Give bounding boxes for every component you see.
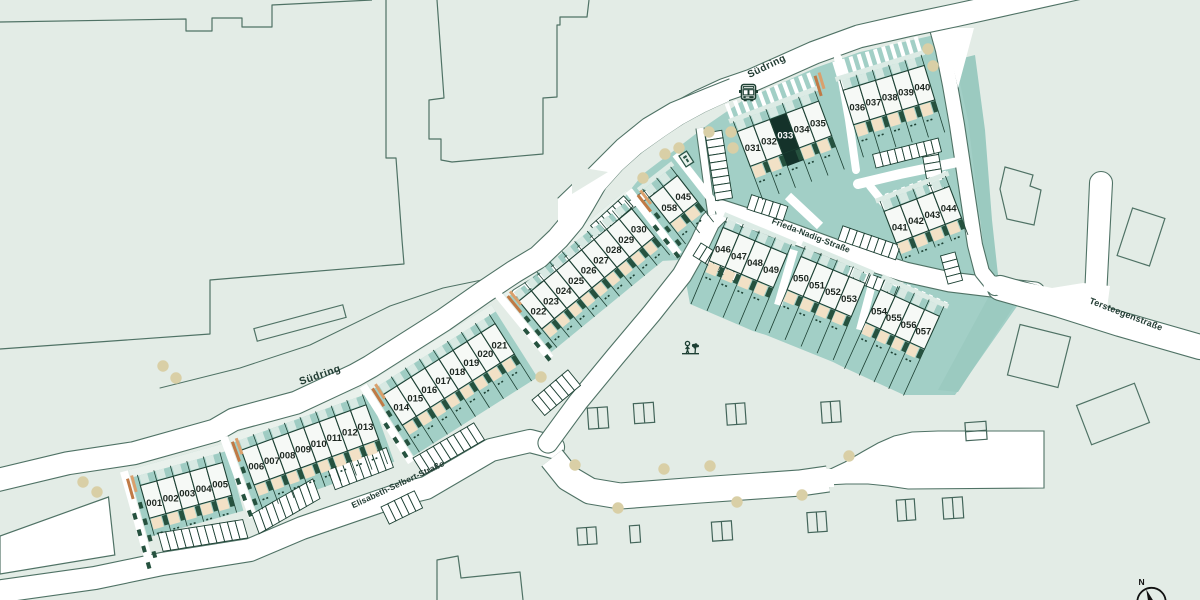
svg-text:052: 052 [825,287,841,298]
svg-text:056: 056 [901,320,917,331]
svg-text:036: 036 [849,102,865,113]
svg-text:011: 011 [327,433,343,444]
svg-text:039: 039 [898,88,914,99]
svg-text:010: 010 [311,439,327,450]
svg-text:009: 009 [295,445,311,456]
svg-text:025: 025 [568,276,585,287]
svg-text:037: 037 [866,97,882,108]
svg-text:026: 026 [581,266,597,277]
svg-text:013: 013 [358,422,374,433]
svg-text:N: N [1139,577,1145,587]
svg-text:007: 007 [264,456,280,467]
svg-text:042: 042 [908,216,924,227]
svg-text:047: 047 [731,251,747,262]
svg-text:001: 001 [146,498,163,509]
svg-text:032: 032 [761,137,777,148]
svg-text:044: 044 [941,204,958,215]
svg-text:049: 049 [763,265,779,276]
svg-text:028: 028 [606,245,622,256]
svg-text:022: 022 [531,307,547,318]
svg-text:005: 005 [212,480,229,491]
svg-text:041: 041 [892,222,909,233]
svg-text:003: 003 [179,489,195,500]
svg-text:024: 024 [556,286,573,297]
svg-text:033: 033 [777,131,793,142]
svg-text:046: 046 [715,245,731,256]
svg-text:008: 008 [280,450,296,461]
svg-text:021: 021 [491,340,508,351]
svg-text:058: 058 [661,203,677,214]
svg-text:004: 004 [196,484,213,495]
svg-text:034: 034 [794,124,811,135]
svg-text:057: 057 [915,327,931,338]
svg-text:031: 031 [745,143,762,154]
svg-text:048: 048 [747,258,763,269]
svg-text:038: 038 [882,92,898,103]
svg-text:043: 043 [924,210,940,221]
svg-text:027: 027 [593,255,609,266]
svg-text:040: 040 [914,83,930,94]
svg-text:053: 053 [841,294,857,305]
svg-text:023: 023 [543,296,559,307]
svg-text:051: 051 [809,280,826,291]
svg-text:006: 006 [248,462,264,473]
svg-text:012: 012 [342,428,358,439]
svg-text:050: 050 [793,274,809,285]
svg-text:029: 029 [618,235,634,246]
svg-text:030: 030 [631,225,647,236]
svg-text:035: 035 [810,118,827,129]
svg-text:002: 002 [163,493,179,504]
svg-text:045: 045 [675,192,692,203]
